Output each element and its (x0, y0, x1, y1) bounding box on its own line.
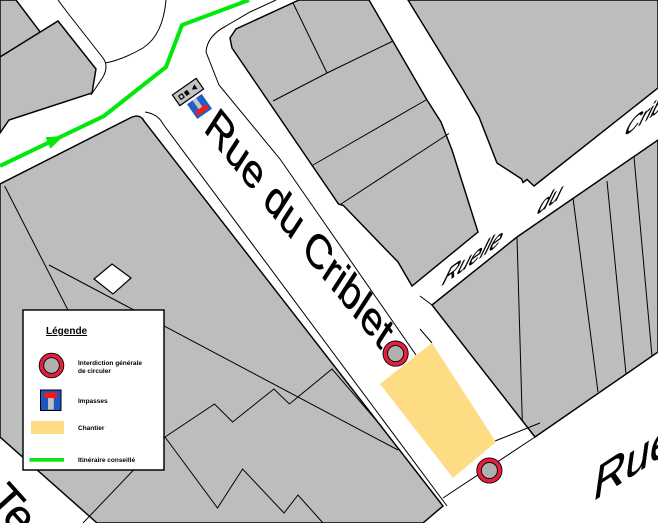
svg-text:de circuler: de circuler (78, 368, 111, 375)
svg-text:Légende: Légende (46, 326, 88, 337)
svg-text:Chantier: Chantier (78, 425, 105, 432)
svg-text:Interdiction générale: Interdiction générale (78, 360, 142, 367)
svg-text:Itinéraire conseillé: Itinéraire conseillé (78, 457, 135, 464)
svg-text:Impasses: Impasses (78, 398, 108, 405)
